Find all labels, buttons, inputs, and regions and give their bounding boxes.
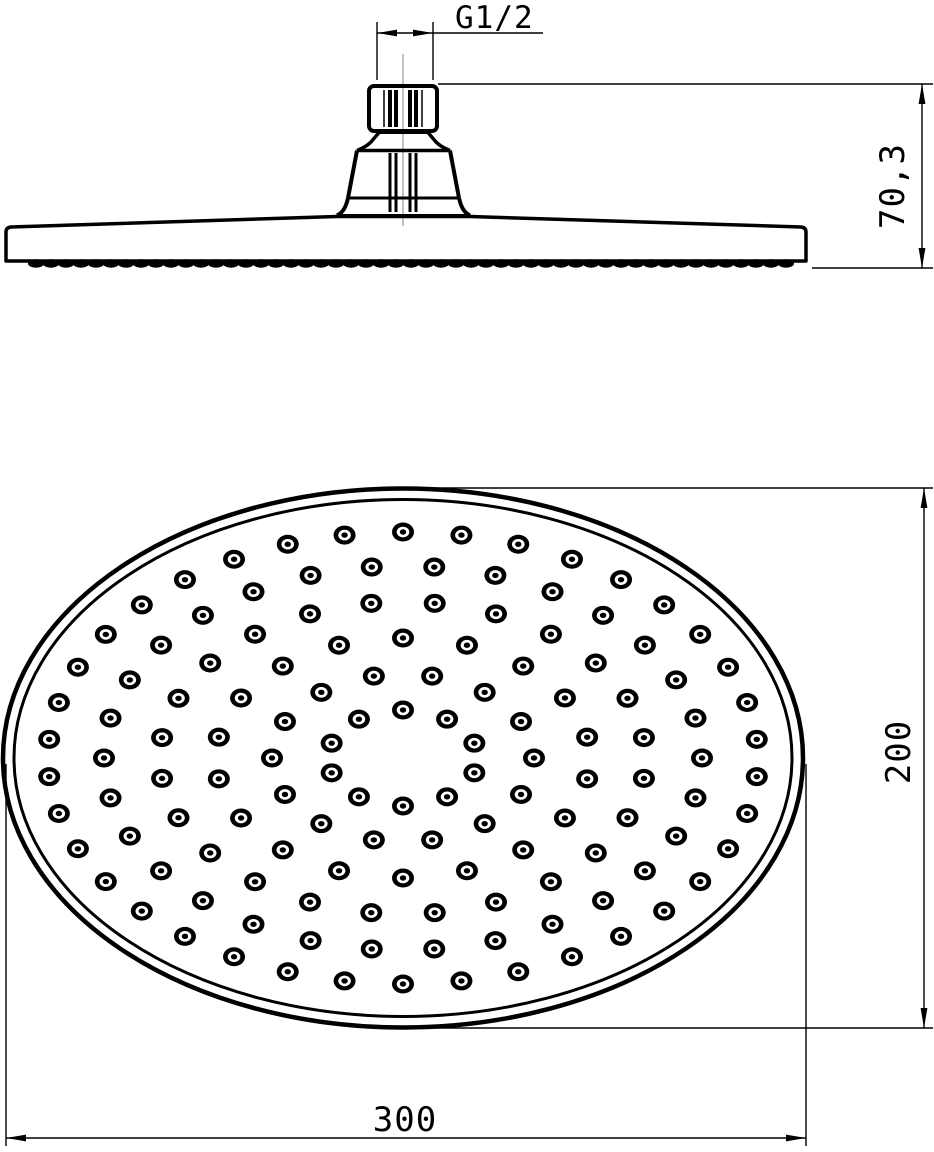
head-height-dimension-label: 70,3 (873, 143, 913, 229)
nozzle-bump (688, 259, 704, 267)
nozzle-bump (418, 259, 434, 267)
nozzle (421, 667, 443, 686)
nozzle (653, 902, 675, 921)
nozzle-center-dot (231, 557, 237, 562)
nozzle-center-dot (307, 899, 313, 904)
nozzle (360, 903, 382, 922)
nozzle-center-dot (432, 601, 438, 606)
nozzle-center-dot (127, 677, 133, 682)
nozzle-center-dot (158, 642, 164, 647)
nozzle-center-dot (431, 946, 437, 951)
nozzle (392, 523, 414, 542)
nozzle (299, 893, 321, 912)
nozzle-center-dot (464, 643, 470, 648)
nozzle (119, 670, 141, 689)
nozzle-bump (148, 259, 164, 267)
nozzle-center-dot (159, 735, 165, 740)
nozzle (653, 595, 675, 614)
nozzle-bump (238, 259, 254, 267)
nozzle-center-dot (618, 577, 624, 582)
nozzle-center-dot (139, 908, 145, 913)
nozzle (48, 804, 70, 823)
nozzle (361, 558, 383, 577)
nozzle (684, 709, 706, 728)
nozzle (554, 809, 576, 828)
nozzle (272, 657, 294, 676)
nozzle-bump (358, 259, 374, 267)
nozzle-bump (553, 259, 569, 267)
nozzle-center-dot (492, 938, 498, 943)
nozzle (174, 927, 196, 946)
nozzle (243, 915, 265, 934)
nozzle (328, 636, 350, 655)
nozzle-center-dot (548, 632, 554, 637)
nozzle-center-dot (158, 868, 164, 873)
nozzle (100, 709, 122, 728)
nozzle (634, 636, 656, 655)
nozzle-bump (658, 259, 674, 267)
nozzle-center-dot (429, 837, 435, 842)
nozzle-center-dot (692, 795, 698, 800)
nozzle-center-dot (744, 700, 750, 705)
shower-head-drawing: G1/2 70,3 200 300 (0, 0, 934, 1152)
nozzle (633, 769, 655, 788)
nozzle (223, 550, 245, 569)
nozzle (150, 861, 172, 880)
nozzle-center-dot (400, 803, 406, 808)
nozzle (131, 902, 153, 921)
nozzle-center-dot (159, 776, 165, 781)
nozzle-center-dot (549, 922, 555, 927)
nozzle (512, 657, 534, 676)
nozzle-center-dot (400, 875, 406, 880)
nozzle-center-dot (429, 673, 435, 678)
nozzle (310, 814, 332, 833)
nozzle (576, 728, 598, 747)
nozzle (592, 891, 614, 910)
nozzle-bump (508, 259, 524, 267)
nozzle-center-dot (368, 601, 374, 606)
nozzle-center-dot (307, 573, 313, 578)
technical-drawing-page: G1/2 70,3 200 300 (0, 0, 934, 1152)
nozzle-bump (373, 259, 389, 267)
nozzle-bump (763, 259, 779, 267)
nozzle (576, 769, 598, 788)
nozzle-center-dot (139, 602, 145, 607)
nozzle-bump (253, 259, 269, 267)
nozzle (484, 566, 506, 585)
nozzle (131, 595, 153, 614)
nozzle (174, 570, 196, 589)
nozzle (746, 767, 768, 786)
nozzle-center-dot (318, 690, 324, 695)
nozzle-bump (343, 259, 359, 267)
nozzle (299, 604, 321, 623)
nozzle-bump (388, 259, 404, 267)
nozzle (463, 734, 485, 753)
nozzle (208, 769, 230, 788)
nozzle-center-dot (432, 910, 438, 915)
nozzle-center-dot (518, 792, 524, 797)
nozzle (328, 861, 350, 880)
nozzle-center-dot (75, 846, 81, 851)
nozzle (423, 558, 445, 577)
nozzle-center-dot (200, 898, 206, 903)
nozzle-center-dot (481, 821, 487, 826)
nozzle (334, 971, 356, 990)
nozzle-center-dot (618, 934, 624, 939)
nozzle-bump (493, 259, 509, 267)
nozzle-center-dot (531, 755, 537, 760)
nozzle-center-dot (624, 696, 630, 701)
nozzle-center-dot (238, 695, 244, 700)
nozzle (474, 683, 496, 702)
nozzle-bump (613, 259, 629, 267)
nozzle-center-dot (400, 529, 406, 534)
nozzle-center-dot (252, 879, 258, 884)
nozzle-center-dot (464, 868, 470, 873)
nozzle-center-dot (520, 663, 526, 668)
nozzle-center-dot (584, 734, 590, 739)
nozzle (423, 939, 445, 958)
nozzle-bump (163, 259, 179, 267)
nozzle-center-dot (307, 611, 313, 616)
nozzle (392, 869, 414, 888)
nozzle (310, 683, 332, 702)
nozzle-bump (208, 259, 224, 267)
nozzle-center-dot (336, 643, 342, 648)
nozzle (424, 903, 446, 922)
nozzle (540, 872, 562, 891)
nozzle-bump (583, 259, 599, 267)
nozzle (334, 526, 356, 545)
nozzle-center-dot (216, 776, 222, 781)
nozzle (348, 787, 370, 806)
nozzle-center-dot (642, 868, 648, 873)
nozzle-center-dot (231, 954, 237, 959)
nozzle (48, 693, 70, 712)
nozzle-bump (463, 259, 479, 267)
nozzle-center-dot (444, 716, 450, 721)
nozzle-center-dot (725, 665, 731, 670)
nozzle-center-dot (600, 898, 606, 903)
nozzle (67, 658, 89, 677)
nozzle-center-dot (356, 794, 362, 799)
nozzle-center-dot (175, 815, 181, 820)
nozzle (167, 808, 189, 827)
nozzle-center-dot (200, 613, 206, 618)
nozzle-bump (58, 259, 74, 267)
nozzle-center-dot (238, 815, 244, 820)
nozzle (321, 734, 343, 753)
nozzle (300, 931, 322, 950)
nozzle-center-dot (641, 735, 647, 740)
nozzle-center-dot (103, 879, 109, 884)
nozzle (484, 931, 506, 950)
nozzle-bump (28, 259, 44, 267)
nozzle (274, 785, 296, 804)
nozzle (192, 891, 214, 910)
nozzle-center-dot (269, 755, 275, 760)
nozzle (450, 526, 472, 545)
nozzle-center-dot (562, 695, 568, 700)
nozzle-center-dot (280, 663, 286, 668)
nozzle-center-dot (593, 850, 599, 855)
face-height-dimension-label: 200 (879, 720, 919, 784)
nozzle-bump (328, 259, 344, 267)
nozzle-center-dot (444, 794, 450, 799)
nozzle-center-dot (285, 542, 291, 547)
nozzle-center-dot (569, 557, 575, 562)
nozzle-bump (568, 259, 584, 267)
nozzle (689, 872, 711, 891)
nozzle-center-dot (336, 868, 342, 873)
nozzle (93, 749, 115, 768)
nozzle-center-dot (252, 632, 258, 637)
nozzle-center-dot (280, 847, 286, 852)
nozzle (485, 604, 507, 623)
nozzle (691, 749, 713, 768)
nozzle-center-dot (328, 770, 334, 775)
nozzle (540, 625, 562, 644)
nozzle (736, 804, 758, 823)
nozzle (167, 689, 189, 708)
nozzle (610, 927, 632, 946)
nozzle (665, 827, 687, 846)
nozzle-center-dot (75, 665, 81, 670)
nozzle (561, 947, 583, 966)
nozzle-center-dot (307, 938, 313, 943)
nozzle (208, 728, 230, 747)
nozzle (361, 939, 383, 958)
nozzle (542, 915, 564, 934)
nozzle-center-dot (175, 696, 181, 701)
nozzle-center-dot (400, 981, 406, 986)
nozzle-center-dot (471, 770, 477, 775)
nozzle-bump (103, 259, 119, 267)
nozzle-bump (313, 259, 329, 267)
nozzle (592, 606, 614, 625)
nozzle-center-dot (493, 611, 499, 616)
nozzle-bump (433, 259, 449, 267)
nozzle (450, 971, 472, 990)
nozzle-center-dot (569, 954, 575, 959)
thread-size-label: G1/2 (455, 0, 534, 36)
nozzle (277, 962, 299, 981)
nozzle-bump (673, 259, 689, 267)
nozzle-center-dot (725, 846, 731, 851)
nozzle-center-dot (520, 847, 526, 852)
nozzle (717, 658, 739, 677)
nozzle (507, 962, 529, 981)
nozzle-center-dot (369, 946, 375, 951)
nozzle (230, 809, 252, 828)
nozzle (150, 636, 172, 655)
nozzle (95, 872, 117, 891)
nozzle-center-dot (471, 740, 477, 745)
nozzle-center-dot (341, 532, 347, 537)
nozzle-bump (403, 259, 419, 267)
nozzle-center-dot (182, 577, 188, 582)
nozzle (277, 535, 299, 554)
nozzle-center-dot (493, 899, 499, 904)
nozzle-center-dot (458, 532, 464, 537)
nozzle-center-dot (661, 908, 667, 913)
nozzle-bump (298, 259, 314, 267)
nozzle-bump (223, 259, 239, 267)
nozzle-center-dot (548, 879, 554, 884)
nozzle-center-dot (699, 755, 705, 760)
nozzle-center-dot (250, 922, 256, 927)
nozzle-center-dot (600, 613, 606, 618)
nozzle (119, 827, 141, 846)
nozzle (507, 535, 529, 554)
nozzle (634, 861, 656, 880)
nozzle-center-dot (593, 660, 599, 665)
nozzle (95, 625, 117, 644)
nozzle-center-dot (207, 850, 213, 855)
nozzle-center-dot (250, 589, 256, 594)
nozzle (474, 814, 496, 833)
nozzle-center-dot (754, 737, 760, 742)
nozzle (363, 830, 385, 849)
nozzle-center-dot (673, 833, 679, 838)
nozzle-bump (448, 259, 464, 267)
nozzle (561, 550, 583, 569)
nozzle (510, 712, 532, 731)
nozzle-center-dot (673, 677, 679, 682)
nozzle-center-dot (400, 707, 406, 712)
nozzle (746, 730, 768, 749)
nozzle (523, 749, 545, 768)
nozzle-bump (628, 259, 644, 267)
nozzle (463, 763, 485, 782)
nozzle (421, 830, 443, 849)
nozzle-bump (778, 259, 794, 267)
nozzle-center-dot (515, 969, 521, 974)
nozzle-bump (118, 259, 134, 267)
nozzle-bump (193, 259, 209, 267)
nozzle-center-dot (549, 589, 555, 594)
nozzle (244, 872, 266, 891)
nozzle (274, 712, 296, 731)
nozzle-center-dot (518, 719, 524, 724)
nozzle (610, 570, 632, 589)
nozzle-center-dot (356, 716, 362, 721)
nozzle-center-dot (328, 740, 334, 745)
nozzle-center-dot (46, 737, 52, 742)
nozzle (436, 710, 458, 729)
nozzle (585, 654, 607, 673)
nozzle (542, 582, 564, 601)
nozzle-center-dot (216, 734, 222, 739)
nozzle-center-dot (624, 815, 630, 820)
nozzle (392, 701, 414, 720)
nozzle (243, 582, 265, 601)
nozzle-center-dot (107, 795, 113, 800)
nozzle-center-dot (127, 833, 133, 838)
nozzle (223, 947, 245, 966)
nozzle-bump (178, 259, 194, 267)
nozzle-bump (478, 259, 494, 267)
nozzle (617, 689, 639, 708)
nozzle (363, 667, 385, 686)
nozzle (392, 629, 414, 648)
nozzle-bump (43, 259, 59, 267)
nozzle (689, 625, 711, 644)
nozzle (633, 728, 655, 747)
nozzle (100, 788, 122, 807)
nozzle (684, 788, 706, 807)
nozzle (665, 670, 687, 689)
nozzle-center-dot (182, 934, 188, 939)
nozzle (230, 689, 252, 708)
nozzle (272, 840, 294, 859)
nozzle-center-dot (368, 910, 374, 915)
nozzle (585, 843, 607, 862)
nozzle-center-dot (492, 573, 498, 578)
nozzle (199, 654, 221, 673)
nozzle-center-dot (56, 700, 62, 705)
nozzle (510, 785, 532, 804)
nozzle-center-dot (282, 792, 288, 797)
nozzle (617, 808, 639, 827)
nozzle-center-dot (661, 602, 667, 607)
nozzle (456, 636, 478, 655)
nozzle-bump (523, 259, 539, 267)
nozzle (348, 710, 370, 729)
nozzle-center-dot (371, 673, 377, 678)
nozzle-center-dot (318, 821, 324, 826)
nozzle (554, 689, 576, 708)
nozzle-center-dot (642, 642, 648, 647)
nozzle-center-dot (341, 978, 347, 983)
nozzle-bump (703, 259, 719, 267)
nozzle-bump (598, 259, 614, 267)
nozzle (192, 606, 214, 625)
nozzle (736, 693, 758, 712)
nozzle-bump (73, 259, 89, 267)
face-width-dimension-label: 300 (373, 1100, 437, 1140)
nozzle-center-dot (371, 837, 377, 842)
nozzle-bump (268, 259, 284, 267)
nozzle-center-dot (103, 632, 109, 637)
nozzle (261, 749, 283, 768)
nozzle (321, 763, 343, 782)
nozzle (151, 769, 173, 788)
nozzle (436, 787, 458, 806)
nozzle (424, 594, 446, 613)
nozzle-center-dot (107, 715, 113, 720)
nozzle (456, 861, 478, 880)
nozzle (392, 975, 414, 994)
nozzle-bump (283, 259, 299, 267)
nozzle (512, 840, 534, 859)
nozzle-center-dot (458, 978, 464, 983)
nozzle (38, 730, 60, 749)
nozzle (360, 594, 382, 613)
nozzle (244, 625, 266, 644)
nozzle-center-dot (285, 969, 291, 974)
nozzle-center-dot (584, 776, 590, 781)
nozzle-bump (643, 259, 659, 267)
nozzle (151, 728, 173, 747)
nozzle-center-dot (697, 632, 703, 637)
nozzle (38, 767, 60, 786)
nozzle-center-dot (207, 660, 213, 665)
nozzle-center-dot (46, 774, 52, 779)
nozzle (717, 839, 739, 858)
